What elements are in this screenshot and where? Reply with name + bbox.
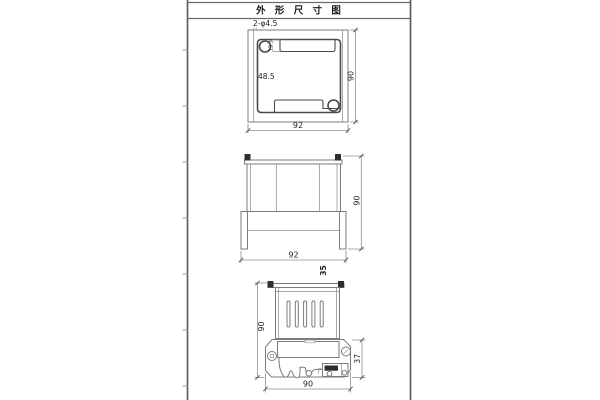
vent-slot — [304, 301, 307, 327]
mounting-hole-bottom-right — [328, 100, 339, 111]
side-view: 90 37 90 — [255, 281, 366, 393]
outline-dimension-drawing: 外 形 尺 寸 图 2-φ4.5 13.3 48.5 — [0, 0, 600, 400]
din-rail-section — [319, 364, 349, 377]
vent-slot — [320, 301, 323, 327]
side-right-clip — [338, 281, 344, 288]
top-height-label: 90 — [347, 71, 356, 81]
side-bracket-label: 37 — [353, 354, 362, 364]
front-top-cap — [245, 160, 343, 164]
front-left-leg — [241, 212, 248, 250]
front-depth-label: 35 — [319, 265, 328, 275]
base-panel-slot — [305, 340, 315, 343]
top-view-top-ledge — [280, 40, 335, 52]
notch-dim-label: 13.3 — [269, 40, 275, 51]
side-width-label: 90 — [303, 380, 313, 389]
rail-roller-left — [327, 371, 332, 376]
front-right-leg — [340, 212, 347, 250]
front-left-clip — [245, 154, 251, 161]
vent-slot — [295, 301, 298, 327]
side-height-label: 90 — [257, 321, 266, 331]
drawing-title: 外 形 尺 寸 图 — [255, 5, 344, 17]
dimension-notch-depth: 13.3 — [269, 40, 281, 52]
top-view: 2-φ4.5 13.3 48.5 90 92 — [246, 19, 359, 133]
rail-roller-right — [342, 370, 347, 375]
front-height-label: 90 — [352, 195, 361, 205]
vent-slot — [312, 301, 315, 327]
base-center-panel — [278, 342, 340, 358]
front-body — [247, 164, 341, 212]
rail-dark-insert — [325, 366, 339, 371]
side-body — [276, 288, 340, 339]
vent-slot — [287, 301, 290, 327]
side-bracket-dimension: 37 — [352, 338, 366, 380]
hole-callout: 2-φ4.5 — [253, 19, 278, 31]
side-left-clip — [268, 281, 274, 288]
side-top-cap — [268, 284, 344, 288]
top-width-label: 92 — [293, 121, 303, 130]
slot-dim-label: 48.5 — [258, 72, 275, 81]
top-view-width-dimension: 92 — [246, 121, 350, 133]
front-width-label: 92 — [288, 251, 298, 260]
front-width-dimension: 92 — [239, 251, 348, 264]
holes-label: 2-φ4.5 — [253, 19, 278, 28]
vent-slots — [287, 301, 323, 327]
clip-tab-hole — [306, 370, 312, 376]
drawing-sheet: 外 形 尺 寸 图 2-φ4.5 13.3 48.5 — [0, 0, 600, 400]
base-screw-left — [268, 352, 277, 361]
front-right-clip — [335, 154, 341, 161]
front-view: 90 92 35 — [239, 154, 365, 276]
